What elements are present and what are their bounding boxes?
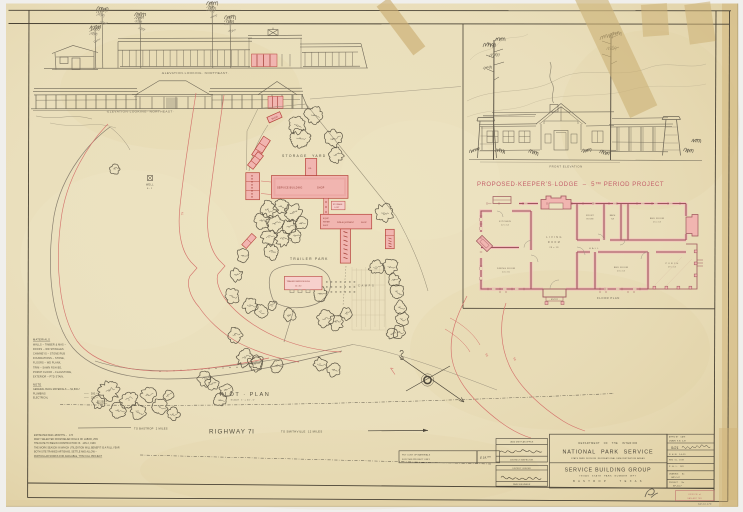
svg-text:7I: 7I	[248, 429, 254, 436]
svg-text:FRONT: FRONT	[586, 215, 594, 217]
svg-text:REG OL. 1939: REG OL. 1939	[669, 460, 684, 462]
svg-text:CHIMNEYS – STONE RUB: CHIMNEYS – STONE RUB	[33, 353, 65, 356]
svg-text:P O R C H: P O R C H	[666, 263, 679, 265]
svg-text:BOTH SITE TRAINED ARTISANS, SE: BOTH SITE TRAINED ARTISANS, SETTLE AND A…	[34, 451, 98, 454]
svg-text:B A S T R O P T E X A S: B A S T R O P T E X A S	[573, 480, 643, 483]
svg-text:LAND USE PLAN OFFICE: LAND USE PLAN OFFICE	[510, 441, 534, 444]
svg-text:PROPOSED·KEEPER’S·LODGE – 5™: PROPOSED·KEEPER’S·LODGE – 5™ PERIOD PROJ…	[477, 181, 664, 188]
svg-text:29 x 19: 29 x 19	[549, 247, 559, 249]
svg-text:SERVICE BUILDING: SERVICE BUILDING	[277, 187, 303, 189]
svg-text:SCALE 1” = 40’- 0”: SCALE 1” = 40’- 0”	[231, 399, 256, 402]
svg-text:SERVICE BUILDING GROUP: SERVICE BUILDING GROUP	[565, 467, 652, 473]
svg-text:PUT COST OF MATERIALS: PUT COST OF MATERIALS	[402, 454, 431, 457]
svg-text:TRIM – SAWN RGH BD,: TRIM – SAWN RGH BD,	[33, 366, 62, 369]
svg-text:ROOFS – WD SHINGLES: ROOFS – WD SHINGLES	[33, 348, 64, 351]
svg-text:SHOP: SHOP	[361, 222, 367, 224]
svg-text:PLOT · PLAN: PLOT · PLAN	[220, 392, 271, 398]
svg-text:MANY SELECTED FROM RELIEF ROLL: MANY SELECTED FROM RELIEF ROLLS OF LABOR…	[34, 438, 98, 441]
svg-text:WALLS – TIMBER & MAS –: WALLS – TIMBER & MAS –	[33, 343, 67, 346]
svg-text:LOFT: LOFT	[335, 207, 341, 209]
svg-text:MATERIALS: MATERIALS	[33, 338, 50, 342]
svg-text:R · A · L · DIR: R · A · L · DIR	[669, 465, 684, 468]
svg-text:APPRD BY DATE: APPRD BY DATE	[669, 436, 686, 439]
svg-text:DRAWING No: DRAWING No	[669, 473, 684, 476]
svg-text:·ELEVATION·LOOKING· NORTHEAST·: ·ELEVATION·LOOKING· NORTHEAST·	[106, 110, 175, 114]
svg-text:19 x 13: 19 x 13	[668, 267, 677, 269]
svg-text:C A M P S: C A M P S	[358, 284, 374, 288]
svg-text:E - 2: E - 2	[147, 188, 153, 190]
svg-text:PORCH FLOOR – FLAGSTONE,: PORCH FLOOR – FLAGSTONE,	[33, 371, 72, 374]
svg-text:SHOP: SHOP	[323, 225, 329, 227]
svg-text:15 x 13: 15 x 13	[653, 222, 662, 224]
svg-text:GENERAL BLDG MATERIALS — $1,80: GENERAL BLDG MATERIALS — $1,800.⁄⁄	[33, 388, 80, 391]
svg-text:FLOOR PLAN: FLOOR PLAN	[597, 296, 620, 300]
svg-text:PARTICULAR WORKS FOR AVAILABLE: PARTICULAR WORKS FOR AVAILABLE, THIS FUL…	[34, 455, 103, 458]
svg-text:R O O M: R O O M	[548, 241, 560, 244]
svg-text:ESTIMATED MAN–MONTHS – 173: ESTIMATED MAN–MONTHS – 173	[34, 434, 74, 437]
svg-text:ROOM: ROOM	[586, 219, 593, 221]
svg-text:14 x 15: 14 x 15	[502, 272, 511, 274]
svg-text:JMP-C-07: JMP-C-07	[671, 477, 680, 479]
svg-text:H A L L: H A L L	[589, 247, 599, 250]
svg-text:OFFICE of: OFFICE of	[688, 494, 701, 496]
svg-text:DINING ROOM: DINING ROOM	[497, 268, 515, 270]
svg-text:$ 18,ººº: $ 18,ººº	[479, 455, 492, 459]
svg-text:SHOP: SHOP	[317, 187, 325, 189]
svg-text:PARK ENGINEER: PARK ENGINEER	[513, 483, 531, 486]
svg-text:DISTRICT OFFICER: DISTRICT OFFICER	[513, 468, 532, 470]
svg-text:TEXAS STATE PARK NUMBER WP: TEXAS STATE PARK NUMBER WPT	[579, 475, 637, 478]
svg-text:FOR THIS PROJECT ONLY: FOR THIS PROJECT ONLY	[402, 459, 431, 461]
svg-text:KITCHEN: KITCHEN	[499, 221, 511, 223]
svg-text:STATE PARK DIVISION RECREATIO: STATE PARK DIVISION RECREATIONAL DEMONST…	[571, 457, 645, 460]
svg-text:12 x 14: 12 x 14	[501, 225, 510, 227]
svg-text:STORAGE YARD: STORAGE YARD	[282, 154, 326, 158]
svg-text:DISTRICT INSPECTOR: DISTRICT INSPECTOR	[510, 460, 533, 462]
svg-text:FOUNDATIONS – STONE,: FOUNDATIONS – STONE,	[33, 357, 65, 360]
svg-text:L I V I N G: L I V I N G	[546, 236, 561, 239]
svg-text:NATIONAL PARK SERVICE: NATIONAL PARK SERVICE	[562, 449, 653, 455]
svg-text:PLUMBING: PLUMBING	[33, 393, 46, 395]
svg-text:·ELEVATION·LOOKING· NORTHEAST·: ·ELEVATION·LOOKING· NORTHEAST·	[161, 71, 230, 75]
svg-text:SP-13-T: SP-13-T	[673, 486, 682, 488]
svg-text:13 x 13: 13 x 13	[617, 271, 626, 273]
svg-text:BED ROOM: BED ROOM	[614, 267, 628, 269]
svg-text:SAN ANT TEX: SAN ANT TEX	[687, 497, 702, 500]
svg-text:EXTERIOR – PTD STAIN,: EXTERIOR – PTD STAIN,	[33, 376, 64, 379]
svg-text:SP.23.178: SP.23.178	[698, 502, 712, 506]
svg-text:FLOORS – WD PLANK,: FLOORS – WD PLANK,	[33, 362, 62, 365]
svg-text:ELECTRICAL: ELECTRICAL	[33, 397, 49, 400]
svg-text:RIGHWAY: RIGHWAY	[209, 429, 246, 436]
svg-text:THE DATE TO BEGIN CONSTRUCTION: THE DATE TO BEGIN CONSTRUCTION IS JAN 2,…	[34, 442, 96, 445]
svg-text:TRAILER SERVICE BLDG: TRAILER SERVICE BLDG	[287, 280, 311, 283]
svg-text:12 x 30: 12 x 30	[295, 286, 301, 288]
svg-text:· ENTRY ·: · ENTRY ·	[549, 299, 559, 301]
svg-text:BATH: BATH	[610, 214, 616, 217]
svg-text:TO BASTROP 2 MILES: TO BASTROP 2 MILES	[134, 426, 168, 430]
svg-text:WELL: WELL	[146, 184, 154, 187]
svg-text:REPAIR: REPAIR	[323, 221, 331, 224]
svg-text:FRONT ELEVATION: FRONT ELEVATION	[549, 165, 582, 169]
svg-text:TRAILER PARK: TRAILER PARK	[290, 257, 329, 261]
svg-text:BED ROOM: BED ROOM	[650, 218, 664, 220]
svg-text:5/21: 5/21	[671, 446, 679, 450]
svg-text:R. H. M. 5-4-39: R. H. M. 5-4-39	[669, 454, 686, 456]
svg-text:EQUIP: EQUIP	[323, 218, 330, 220]
svg-text:DEPARTMENT OF THE INTERI: DEPARTMENT OF THE INTERIOR	[578, 442, 637, 445]
svg-text:TO SMITHVILLE 12 MILES: TO SMITHVILLE 12 MILES	[281, 429, 322, 433]
svg-text:STORAGE: STORAGE	[333, 203, 343, 206]
svg-text:PROJECT No: PROJECT No	[669, 482, 684, 484]
svg-text:THE WORK SEASON IN WHICH UTILI: THE WORK SEASON IN WHICH UTILIZATION WIL…	[34, 446, 120, 449]
svg-text:WPA EQUIPMENT: WPA EQUIPMENT	[337, 221, 355, 224]
svg-text:NOTE: NOTE	[33, 383, 41, 387]
svg-text:DRAWN R.M. 4-39: DRAWN R.M. 4-39	[669, 440, 686, 443]
